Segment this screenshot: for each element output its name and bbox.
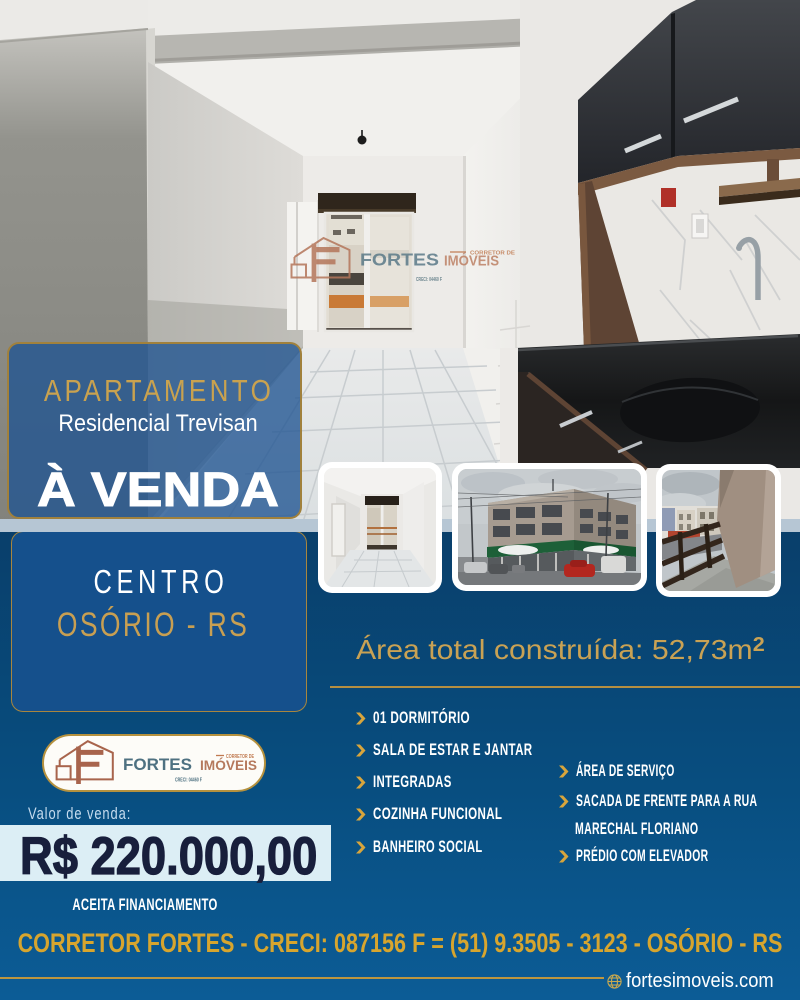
svg-text:FORTES: FORTES bbox=[360, 250, 439, 270]
svg-text:CRECI: 04460 F: CRECI: 04460 F bbox=[416, 277, 442, 283]
svg-text:FORTES: FORTES bbox=[123, 756, 192, 774]
svg-text:IMÓVEIS: IMÓVEIS bbox=[444, 252, 499, 270]
svg-text:CRECI: 04460 F: CRECI: 04460 F bbox=[175, 778, 202, 784]
svg-text:IMÓVEIS: IMÓVEIS bbox=[200, 756, 257, 773]
